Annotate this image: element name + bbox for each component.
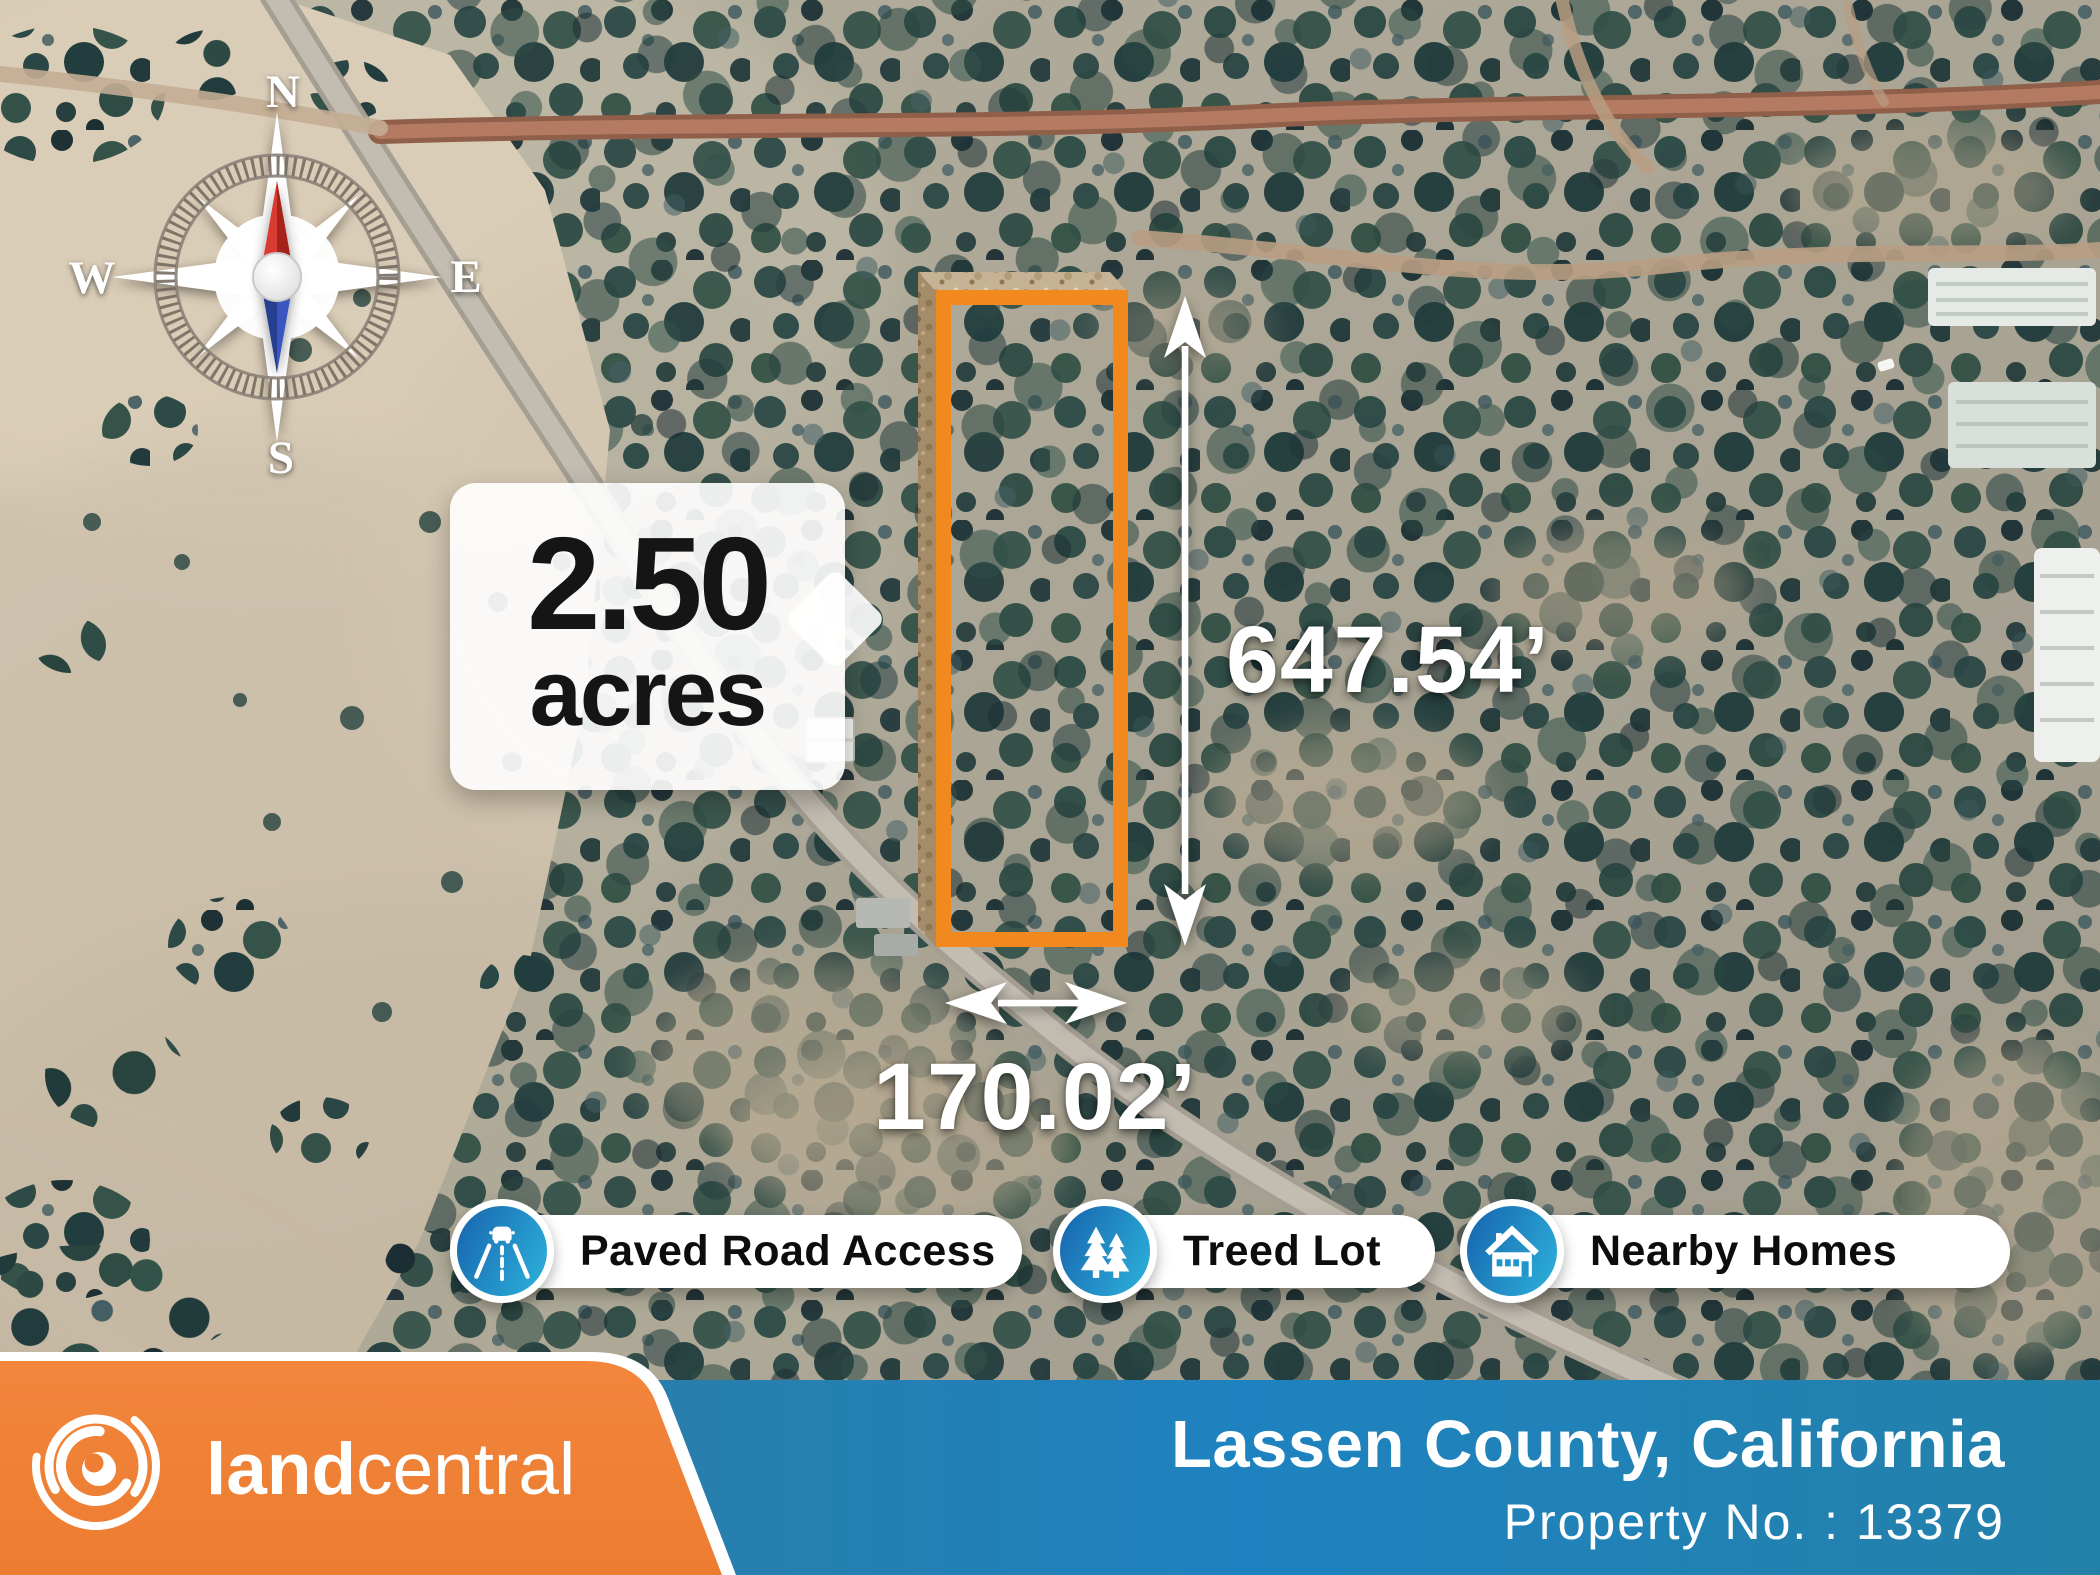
brand-name-bold: land xyxy=(206,1429,356,1510)
acreage-unit: acres xyxy=(450,646,845,740)
property-location: Lassen County, California xyxy=(1171,1406,2005,1483)
brand-name-light: central xyxy=(356,1429,575,1510)
land-listing-graphic: N E S W 2.50 acres 647.54’ 170.02’ Paved… xyxy=(0,0,2100,1575)
landcentral-wordmark: landcentral xyxy=(206,1428,575,1511)
parcel-left-face xyxy=(918,272,936,947)
compass-west-label: W xyxy=(69,251,116,305)
house-icon xyxy=(1460,1199,1564,1303)
compass-south-label: S xyxy=(268,431,294,485)
compass-north-label: N xyxy=(266,65,300,119)
property-number: Property No. : 13379 xyxy=(1504,1493,2005,1551)
badge-label: Treed Lot xyxy=(1183,1227,1381,1276)
satellite-map xyxy=(0,0,2100,1575)
badge-label: Paved Road Access xyxy=(580,1227,996,1276)
parcel-height-label: 647.54’ xyxy=(1226,613,1550,708)
parcel-top-face xyxy=(918,272,1128,292)
parcel-width-label: 170.02’ xyxy=(860,1050,1210,1145)
compass-east-label: E xyxy=(450,250,481,304)
badge-pill: Paved Road Access xyxy=(502,1215,1022,1288)
badge-label: Nearby Homes xyxy=(1590,1227,1897,1276)
paved-road-icon xyxy=(450,1199,554,1303)
acreage-callout: 2.50 acres xyxy=(450,483,845,790)
pine-trees-icon xyxy=(1053,1199,1157,1303)
badge-pill: Nearby Homes xyxy=(1512,1215,2010,1288)
acreage-value: 2.50 xyxy=(450,523,845,644)
